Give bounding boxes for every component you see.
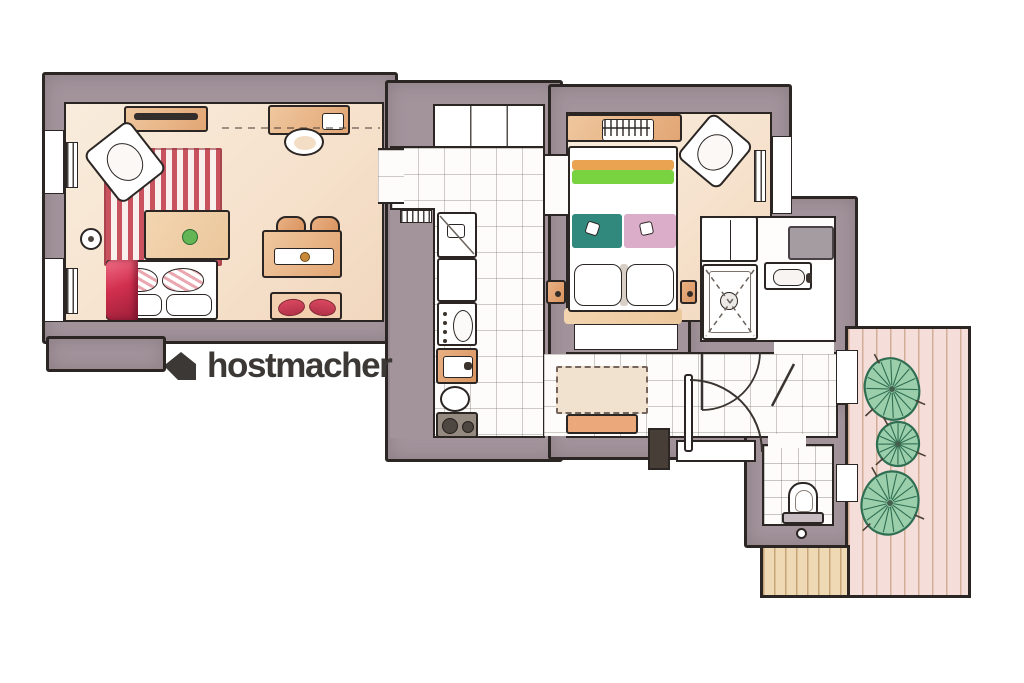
house-icon (164, 350, 198, 382)
kitchen-round-table (440, 386, 470, 412)
bed-book-2 (639, 221, 654, 236)
fridge (437, 212, 477, 258)
sink-basin (453, 310, 473, 342)
logo: hostmacher (164, 346, 391, 386)
stove (436, 412, 478, 438)
bedroom-window (772, 136, 792, 214)
wardrobe (566, 114, 682, 142)
living-window-2 (44, 258, 64, 322)
radiator-living-1 (66, 142, 78, 188)
burner-2 (462, 421, 474, 433)
terrace-door (836, 350, 858, 404)
wc-doorway (768, 434, 806, 448)
living-kitchen-passage (378, 148, 404, 204)
wc-knob (796, 528, 807, 539)
kitchen-bedroom-doorway (545, 154, 568, 216)
red-throw (106, 260, 138, 320)
hall-bench (566, 414, 638, 434)
radiator-bedroom (754, 150, 766, 202)
tv (134, 113, 198, 120)
wall-pier (648, 428, 670, 470)
armchair-cushion (99, 136, 150, 188)
kitchen-cabinet (437, 258, 477, 302)
kitchen-wall-chunk (390, 208, 435, 438)
blanket-stripe-green (572, 170, 674, 184)
dining-table (262, 230, 342, 278)
wardrobe-hanger-section (602, 119, 654, 141)
toilet-tank (782, 512, 824, 524)
coffee-table (144, 210, 230, 260)
washing-machine (788, 226, 834, 260)
burner-1 (442, 418, 458, 434)
kitchen-sink (437, 302, 477, 346)
bedroom-hall-door (574, 324, 678, 350)
double-bed (568, 146, 678, 312)
bench-pillow-1 (277, 297, 306, 318)
desk-paper (322, 113, 344, 130)
nightstand-right (680, 280, 697, 304)
wall-clock (80, 228, 102, 250)
hall-rug (556, 366, 648, 414)
terrace-window (836, 464, 858, 502)
wall-living-step (46, 336, 166, 372)
logo-text: hostmacher (207, 346, 391, 386)
table-plant (300, 252, 310, 262)
bench-pillow-2 (308, 297, 337, 318)
nightstand-left (546, 280, 566, 304)
floor-plan: hostmacher (0, 0, 1024, 683)
shower-drain (720, 292, 738, 310)
terrace-deck (845, 326, 971, 598)
living-window-1 (44, 130, 64, 194)
bathroom-doorway (774, 342, 834, 354)
shower (702, 264, 758, 340)
entry-door-leaf (684, 374, 693, 452)
blanket-stripe-orange (572, 160, 674, 170)
sink-bowl (773, 269, 805, 286)
sofa-cushion-2 (166, 294, 212, 316)
terrace-deck-lower (760, 545, 850, 598)
oven (436, 348, 478, 384)
tv-sideboard (124, 106, 208, 132)
sofa-pillow-2 (162, 268, 204, 292)
bed-pillow-2 (626, 264, 674, 306)
dining-bench (270, 292, 342, 320)
bathroom-sink (764, 262, 812, 290)
sink-tap (806, 273, 812, 283)
kitchen-tall-cabinets (433, 104, 545, 148)
radiator-living-2 (66, 268, 78, 314)
bath-cabinet (700, 216, 758, 262)
coffee-table-plant (182, 229, 198, 245)
desk-chair (284, 128, 324, 156)
bed-pillow-1 (574, 264, 622, 306)
kitchen-shelf (400, 210, 432, 223)
